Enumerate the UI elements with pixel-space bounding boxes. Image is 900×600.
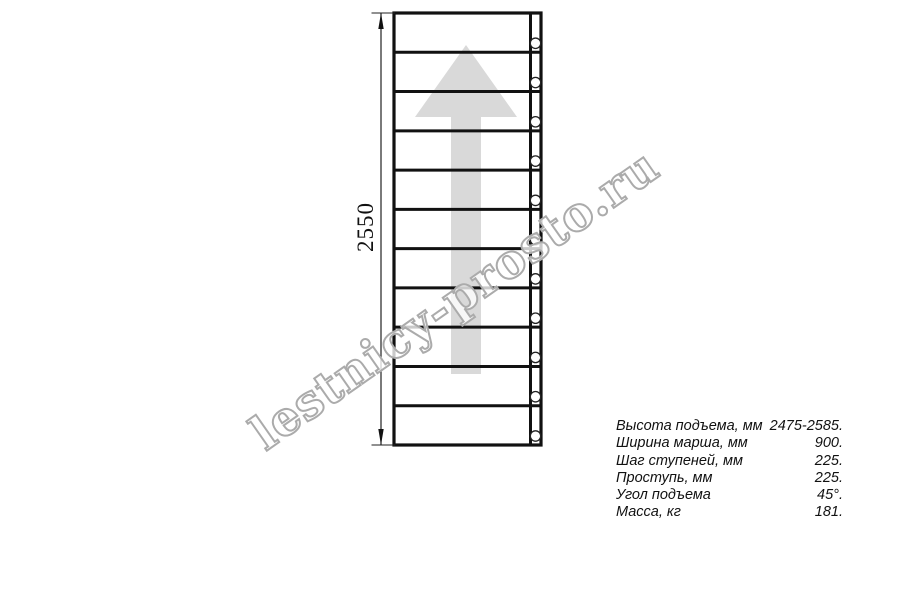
spec-label: Угол подъема <box>616 487 711 504</box>
spec-label: Шаг ступеней, мм <box>616 453 743 470</box>
spec-row: Масса, кг181. <box>616 504 843 521</box>
dimension-arrow-bottom-icon <box>378 429 383 445</box>
stringer-hole <box>530 352 540 362</box>
spec-value: 2475-2585. <box>770 418 843 435</box>
dimension-label: 2550 <box>353 202 379 252</box>
spec-row: Проступь, мм225. <box>616 470 843 487</box>
stringer-hole <box>530 156 540 166</box>
spec-value: 900. <box>815 435 843 452</box>
spec-row: Ширина марша, мм900. <box>616 435 843 452</box>
spec-value: 45°. <box>817 487 843 504</box>
spec-label: Масса, кг <box>616 504 681 521</box>
spec-label: Проступь, мм <box>616 470 712 487</box>
spec-value: 181. <box>815 504 843 521</box>
spec-row: Шаг ступеней, мм225. <box>616 453 843 470</box>
spec-label: Ширина марша, мм <box>616 435 748 452</box>
stringer-hole <box>530 195 540 205</box>
spec-value: 225. <box>815 470 843 487</box>
spec-row: Угол подъема45°. <box>616 487 843 504</box>
spec-row: Высота подъема, мм2475-2585. <box>616 418 843 435</box>
spec-label: Высота подъема, мм <box>616 418 763 435</box>
drawing-canvas: 2550 lestnicy-prosto.ru Высота подъема, … <box>0 0 900 600</box>
stringer-hole <box>530 392 540 402</box>
stringer-hole <box>530 431 540 441</box>
spec-value: 225. <box>815 453 843 470</box>
stringer-hole <box>530 38 540 48</box>
stringer-hole <box>530 313 540 323</box>
dimension-arrow-top-icon <box>378 13 383 29</box>
stringer-hole <box>530 77 540 87</box>
specs-table: Высота подъема, мм2475-2585.Ширина марша… <box>616 418 843 522</box>
stringer-hole <box>530 117 540 127</box>
